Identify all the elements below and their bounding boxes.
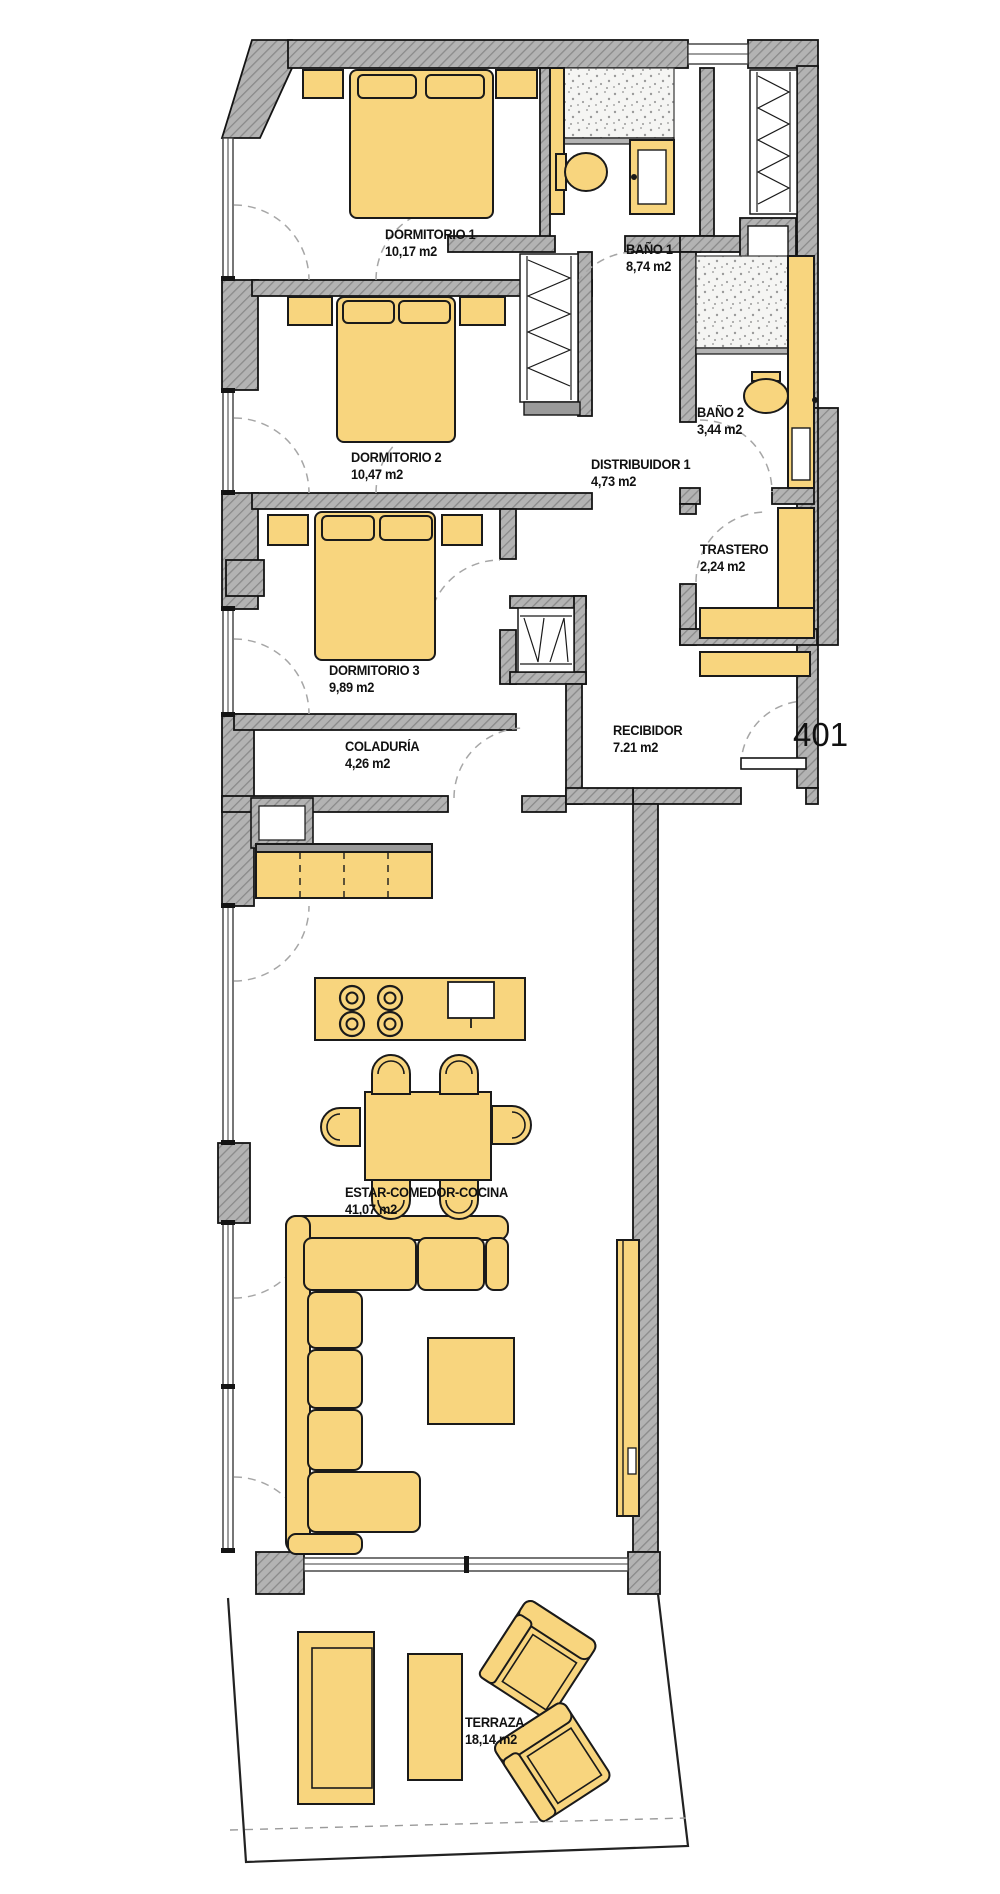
toilet-bano2 <box>744 372 788 413</box>
wall-niche-interior <box>259 806 305 840</box>
room-name: DORMITORIO 1 <box>385 226 475 243</box>
bano1-cabinet <box>550 68 564 214</box>
door-arc-window-dorm1 <box>234 205 309 280</box>
room-area: 4,26 m2 <box>345 755 419 772</box>
pillow <box>358 75 416 98</box>
dining-chair <box>492 1106 531 1144</box>
sink <box>448 982 494 1018</box>
room-name: TRASTERO <box>700 541 768 558</box>
terrace-table <box>408 1654 462 1780</box>
kitchen-island <box>315 978 525 1040</box>
wall-trastero-left-a <box>680 504 696 514</box>
room-name: COLADURÍA <box>345 738 419 755</box>
pillow <box>399 301 450 323</box>
room-label-bano2: BAÑO 2 3,44 m2 <box>697 404 744 438</box>
nightstand <box>303 70 343 98</box>
terrace-sofa <box>298 1632 374 1804</box>
room-label-coladuria: COLADURÍA 4,26 m2 <box>345 738 419 772</box>
room-name: DORMITORIO 2 <box>351 449 441 466</box>
wall-recibidor-bottom <box>633 788 741 804</box>
wall-corridor-right <box>566 684 582 804</box>
room-label-bano1: BAÑO 1 8,74 m2 <box>626 241 673 275</box>
wall-wardrobe2-right <box>578 252 592 416</box>
bed-dorm3 <box>268 512 482 660</box>
wardrobe-dorm2-base <box>524 402 580 415</box>
door-arc-window-dorm3 <box>234 639 309 714</box>
room-area: 18,14 m2 <box>465 1731 524 1748</box>
room-name: DISTRIBUIDOR 1 <box>591 456 690 473</box>
wall-closet-bottom <box>510 672 586 684</box>
wall-bano2-bottom-r <box>772 488 814 504</box>
pillar-bottom-right <box>628 1552 660 1594</box>
vanity-bano1 <box>630 140 674 214</box>
door-arc-window-living1 <box>234 906 309 981</box>
room-label-recibidor: RECIBIDOR 7.21 m2 <box>613 722 682 756</box>
terrace-armchair-1 <box>478 1598 599 1721</box>
room-area: 8,74 m2 <box>626 258 673 275</box>
tv-cabinet <box>617 1240 639 1516</box>
room-label-trastero: TRASTERO 2,24 m2 <box>700 541 768 575</box>
wall-top-right <box>748 40 818 68</box>
room-label-terraza: TERRAZA 18,14 m2 <box>465 1714 524 1748</box>
dining-table <box>365 1092 491 1180</box>
room-name: BAÑO 2 <box>697 404 744 421</box>
bed-dorm1 <box>303 70 537 218</box>
pillow <box>343 301 394 323</box>
nightstand <box>496 70 537 98</box>
room-name: DORMITORIO 3 <box>329 662 419 679</box>
wall-hall <box>700 68 714 236</box>
pillow <box>322 516 374 540</box>
recibidor-bench <box>700 652 810 676</box>
room-name: ESTAR-COMEDOR-COCINA <box>345 1184 508 1201</box>
room-name: TERRAZA <box>465 1714 524 1731</box>
pillow <box>426 75 484 98</box>
room-label-dormitorio3: DORMITORIO 3 9,89 m2 <box>329 662 419 696</box>
pillow <box>380 516 432 540</box>
floor-plan: DORMITORIO 1 10,17 m2 BAÑO 1 8,74 m2 DOR… <box>0 0 1000 1894</box>
dining-chair <box>440 1055 478 1094</box>
wall-bano1-left <box>540 68 550 238</box>
unit-number: 401 <box>793 718 848 752</box>
room-label-distribuidor1: DISTRIBUIDOR 1 4,73 m2 <box>591 456 690 490</box>
wall-top <box>288 40 688 68</box>
room-name: RECIBIDOR <box>613 722 682 739</box>
nightstand <box>268 515 308 545</box>
room-label-estar-comedor-cocina: ESTAR-COMEDOR-COCINA 41,07 m2 <box>345 1184 508 1218</box>
wardrobe-dorm2 <box>520 254 578 402</box>
wall-dorm3-right-a <box>500 509 516 559</box>
room-area: 9,89 m2 <box>329 679 419 696</box>
room-area: 10,17 m2 <box>385 243 475 260</box>
entrance-door-leaf <box>741 758 806 769</box>
coffee-table <box>428 1338 514 1424</box>
dining-chair <box>372 1055 410 1094</box>
room-area: 4,73 m2 <box>591 473 690 490</box>
door-arc-dorm3 <box>428 560 500 632</box>
shower-bano2 <box>696 256 797 348</box>
room-area: 3,44 m2 <box>697 421 744 438</box>
room-area: 41,07 m2 <box>345 1201 508 1218</box>
wall-dorm3-coladuria <box>234 714 516 730</box>
room-label-dormitorio2: DORMITORIO 2 10,47 m2 <box>351 449 441 483</box>
room-name: BAÑO 1 <box>626 241 673 258</box>
room-area: 7.21 m2 <box>613 739 682 756</box>
wall-closet-right <box>574 596 586 684</box>
room-area: 2,24 m2 <box>700 558 768 575</box>
wall-bano2-bottom-l <box>680 488 700 504</box>
nightstand <box>288 297 332 325</box>
room-label-dormitorio1: DORMITORIO 1 10,17 m2 <box>385 226 475 260</box>
wall-dorm2-dorm3 <box>252 493 592 509</box>
door-arc-coladuria <box>454 728 524 798</box>
floor-plan-drawing <box>0 0 1000 1894</box>
shower-bano1 <box>564 68 674 138</box>
room-area: 10,47 m2 <box>351 466 441 483</box>
dining-chair <box>321 1108 360 1146</box>
bed-dorm2 <box>288 297 505 442</box>
pillar-bottom-left <box>256 1552 304 1594</box>
wall-top-left-diagonal <box>222 40 292 138</box>
wall-bano2-left <box>680 252 696 422</box>
kitchen-counter <box>256 844 432 898</box>
nightstand <box>442 515 482 545</box>
toilet-bano1 <box>556 153 607 191</box>
door-arc-window-dorm2 <box>234 418 309 493</box>
nightstand <box>460 297 505 325</box>
vanity-bano2 <box>788 256 817 488</box>
